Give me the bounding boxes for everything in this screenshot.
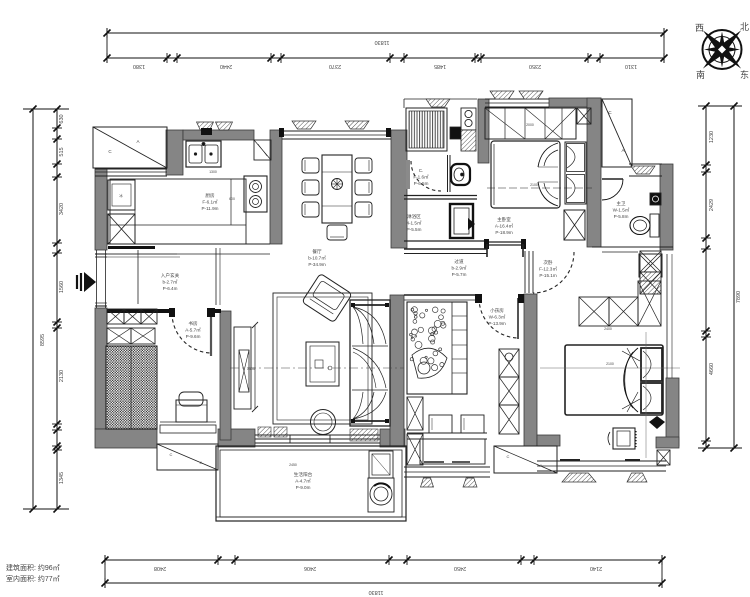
svg-text:A: A (621, 148, 624, 153)
svg-text:冰: 冰 (119, 193, 123, 198)
svg-text:P-6.4m: P-6.4m (163, 286, 178, 291)
svg-text:淋浴区: 淋浴区 (407, 213, 421, 220)
svg-text:A-16.4㎡: A-16.4㎡ (495, 223, 514, 229)
svg-text:515: 515 (59, 147, 65, 156)
svg-text:600: 600 (229, 197, 235, 201)
svg-text:书房: 书房 (188, 320, 198, 327)
svg-text:b-2.9㎡: b-2.9㎡ (451, 265, 466, 271)
svg-text:1345: 1345 (59, 472, 65, 484)
svg-text:建筑面积: 约96㎡: 建筑面积: 约96㎡ (6, 563, 60, 572)
svg-text:2400: 2400 (604, 327, 612, 331)
svg-text:A: A (136, 139, 139, 144)
svg-text:C: C (507, 454, 510, 459)
svg-text:2100: 2100 (247, 367, 255, 371)
svg-text:F-1.6㎡: F-1.6㎡ (413, 174, 429, 180)
svg-text:2350: 2350 (529, 63, 541, 69)
svg-text:W-1.5㎡: W-1.5㎡ (613, 207, 630, 213)
svg-text:P-5.5m: P-5.5m (407, 227, 422, 232)
svg-text:2408: 2408 (154, 565, 166, 571)
svg-text:7890: 7890 (736, 291, 742, 303)
svg-text:4660: 4660 (709, 363, 715, 375)
svg-text:次卧: 次卧 (543, 259, 553, 266)
svg-text:入户玄关: 入户玄关 (161, 272, 180, 279)
svg-text:1380: 1380 (133, 63, 145, 69)
svg-text:2450: 2450 (289, 463, 297, 467)
svg-text:2130: 2130 (59, 370, 65, 382)
svg-text:b-10.7㎡: b-10.7㎡ (308, 255, 326, 261)
svg-text:东: 东 (740, 69, 749, 80)
svg-text:生活阳台: 生活阳台 (294, 471, 313, 478)
svg-text:小孩房: 小孩房 (490, 307, 504, 314)
svg-text:F-6.1㎡: F-6.1㎡ (202, 199, 218, 205)
svg-text:2100: 2100 (530, 183, 538, 187)
svg-text:北: 北 (740, 22, 749, 32)
svg-text:P-9.6m: P-9.6m (186, 334, 201, 339)
svg-text:室内面积: 约77㎡: 室内面积: 约77㎡ (6, 574, 60, 583)
svg-text:C: C (170, 452, 173, 457)
svg-text:A-4.7㎡: A-4.7㎡ (295, 478, 311, 484)
svg-text:F-12.3㎡: F-12.3㎡ (539, 266, 557, 272)
svg-text:11830: 11830 (369, 589, 384, 595)
svg-text:P-9.0m: P-9.0m (296, 485, 311, 490)
svg-text:1560: 1560 (59, 281, 65, 293)
svg-text:3420: 3420 (59, 203, 65, 215)
svg-text:8595: 8595 (40, 334, 46, 346)
svg-text:P-34.9m: P-34.9m (308, 262, 326, 267)
svg-text:1230: 1230 (709, 131, 715, 143)
svg-text:A-5.7㎡: A-5.7㎡ (185, 327, 201, 333)
svg-text:南: 南 (696, 69, 705, 80)
svg-text:A: A (200, 460, 203, 465)
svg-text:4-1.5㎡: 4-1.5㎡ (406, 220, 421, 226)
svg-text:1310: 1310 (625, 63, 637, 69)
svg-text:11830: 11830 (375, 39, 390, 45)
svg-text:2140: 2140 (590, 565, 602, 571)
svg-text:1300: 1300 (209, 170, 217, 174)
svg-text:W-6.3㎡: W-6.3㎡ (489, 314, 506, 320)
svg-text:630: 630 (59, 114, 65, 123)
svg-text:2000: 2000 (526, 123, 534, 127)
svg-text:P-11.9m: P-11.9m (201, 206, 218, 211)
svg-text:过道: 过道 (454, 258, 464, 265)
svg-text:1485: 1485 (434, 63, 446, 69)
svg-text:厨房: 厨房 (205, 192, 215, 199)
svg-text:西: 西 (695, 23, 704, 33)
svg-text:A: A (540, 463, 543, 468)
svg-text:2450: 2450 (454, 565, 466, 571)
svg-text:餐厅: 餐厅 (312, 248, 322, 255)
svg-text:主卧室: 主卧室 (497, 216, 511, 223)
svg-text:2370: 2370 (329, 63, 341, 69)
svg-text:P-6.5m: P-6.5m (414, 181, 429, 186)
svg-text:2100: 2100 (606, 362, 614, 366)
svg-text:2440: 2440 (220, 63, 232, 69)
svg-text:P-15.1m: P-15.1m (539, 273, 557, 278)
svg-text:b-2.7㎡: b-2.7㎡ (162, 279, 177, 285)
svg-text:主卫: 主卫 (616, 200, 626, 206)
svg-text:P-5.8m: P-5.8m (614, 214, 629, 219)
svg-text:P-13.9m: P-13.9m (488, 321, 506, 326)
svg-text:2406: 2406 (304, 565, 316, 571)
svg-text:P-18.9m: P-18.9m (495, 230, 513, 235)
svg-text:2429: 2429 (709, 199, 715, 211)
svg-text:C.: C. (419, 168, 424, 173)
svg-text:P-5.7m: P-5.7m (452, 272, 467, 277)
